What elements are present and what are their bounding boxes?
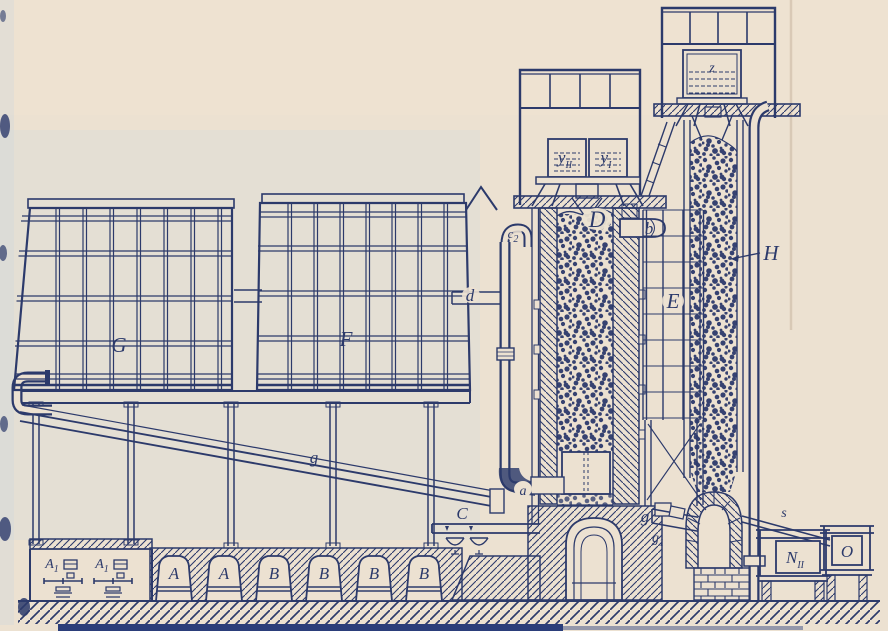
label-column-h: H xyxy=(762,241,780,265)
shaft-d xyxy=(534,208,645,505)
label-tank-g: G xyxy=(111,333,126,357)
label-tank-f: F xyxy=(339,327,353,351)
lower-chamber xyxy=(562,452,610,494)
column-h xyxy=(684,120,752,600)
bottom-scan-strip xyxy=(58,624,563,631)
label-z: z xyxy=(708,61,715,76)
diagram-page: z yII yI D b c2 d G F E H g a C g g1 s A… xyxy=(0,0,888,631)
plant-elevation-drawing: z yII yI D b c2 d G F E H g a C g g1 s A… xyxy=(0,0,888,631)
ground xyxy=(18,601,880,624)
pipe-flange xyxy=(45,370,50,384)
label-pipe-b: b xyxy=(645,219,654,238)
label-hopper-1: A xyxy=(168,564,180,583)
label-tower-e: E xyxy=(666,289,680,313)
pipe-collar xyxy=(497,348,514,360)
tower-brace xyxy=(641,122,675,196)
platform-z xyxy=(654,104,800,116)
label-scales-c: C xyxy=(456,504,468,523)
weigh-table xyxy=(536,177,640,184)
scale-bowl xyxy=(470,538,488,554)
label-a1-right: A1 xyxy=(94,557,109,575)
label-chute-s: s xyxy=(781,506,787,521)
label-chute-g: g xyxy=(641,507,650,526)
label-shaft-d: D xyxy=(588,207,606,232)
label-elbow-a: a xyxy=(520,484,527,499)
label-a1-left: A1 xyxy=(44,557,59,575)
label-pipe-d: d xyxy=(466,286,475,305)
label-hopper-3: B xyxy=(269,564,280,583)
label-hopper-2: A xyxy=(218,564,230,583)
label-box-o: O xyxy=(841,542,853,561)
coal-fill-d xyxy=(557,214,613,452)
hopper-row xyxy=(150,548,462,601)
label-hopper-5: B xyxy=(369,564,380,583)
coal-fill-h xyxy=(690,136,737,492)
pipe-flange xyxy=(744,556,765,566)
label-hopper-6: B xyxy=(419,564,430,583)
masonry-block xyxy=(452,556,540,600)
weigh-box-y2 xyxy=(548,139,586,177)
brick-pedestal xyxy=(694,568,752,600)
label-conveyor-g: g xyxy=(310,448,319,467)
label-hopper-4: B xyxy=(319,564,330,583)
